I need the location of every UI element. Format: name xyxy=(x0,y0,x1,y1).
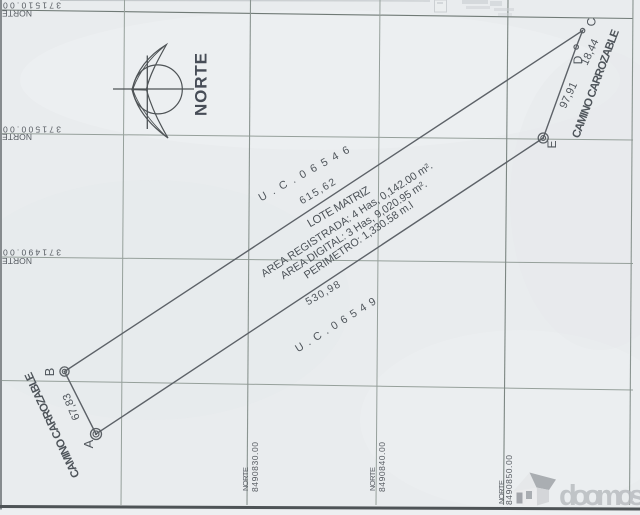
svg-text:NORTE: NORTE xyxy=(192,53,211,116)
svg-text:NORTE: NORTE xyxy=(2,256,32,266)
svg-text:C: C xyxy=(585,17,599,26)
svg-text:NORTE: NORTE xyxy=(368,467,377,491)
svg-text:E: E xyxy=(545,140,559,148)
svg-text:doomos: doomos xyxy=(559,480,640,512)
svg-text:B: B xyxy=(42,368,57,377)
svg-text:8490850.00: 8490850.00 xyxy=(504,455,514,505)
svg-text:371490.00: 371490.00 xyxy=(3,247,61,257)
svg-text:NORTE: NORTE xyxy=(241,467,250,491)
svg-text:NORTE: NORTE xyxy=(2,132,32,142)
svg-text:8490840.00: 8490840.00 xyxy=(377,442,387,492)
svg-text:A: A xyxy=(81,439,96,448)
svg-text:NORTE: NORTE xyxy=(2,8,32,18)
svg-text:8490830.00: 8490830.00 xyxy=(250,442,260,492)
